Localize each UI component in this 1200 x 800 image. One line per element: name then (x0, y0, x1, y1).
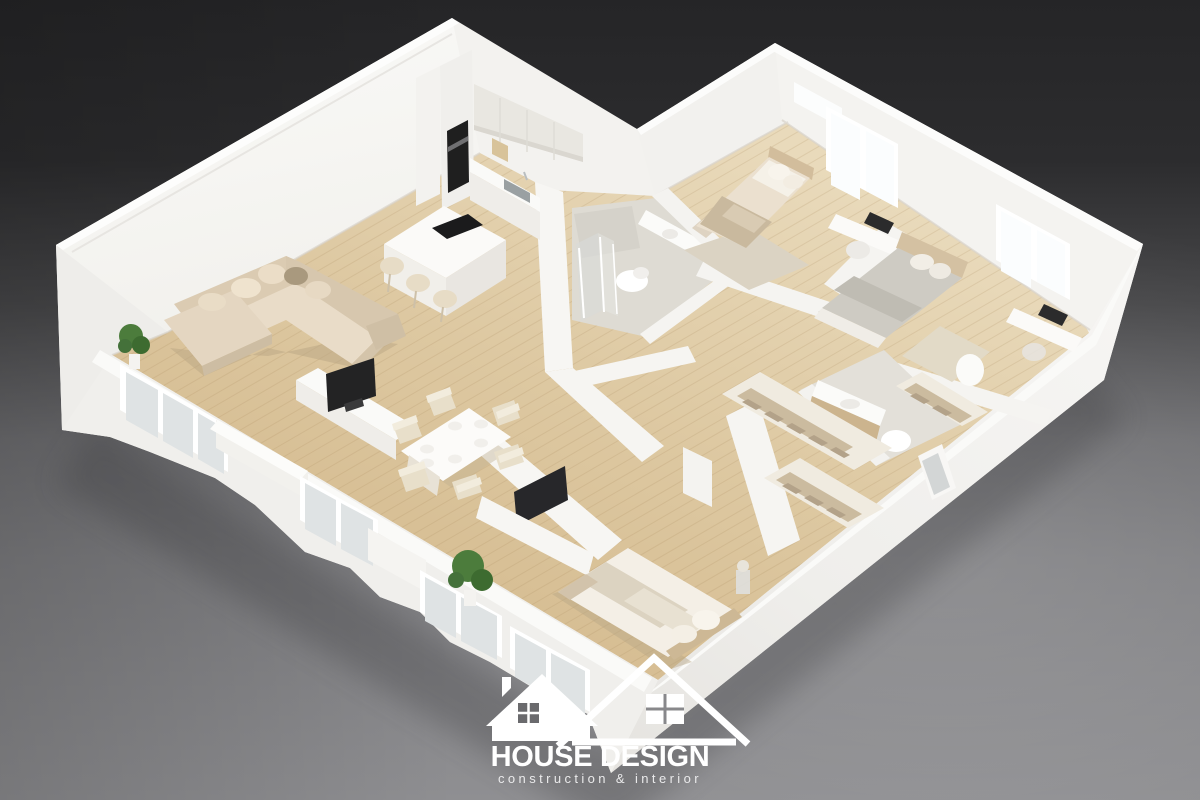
svg-text:construction & interior: construction & interior (498, 771, 702, 786)
svg-text:HOUSE DESIGN: HOUSE DESIGN (491, 741, 710, 773)
